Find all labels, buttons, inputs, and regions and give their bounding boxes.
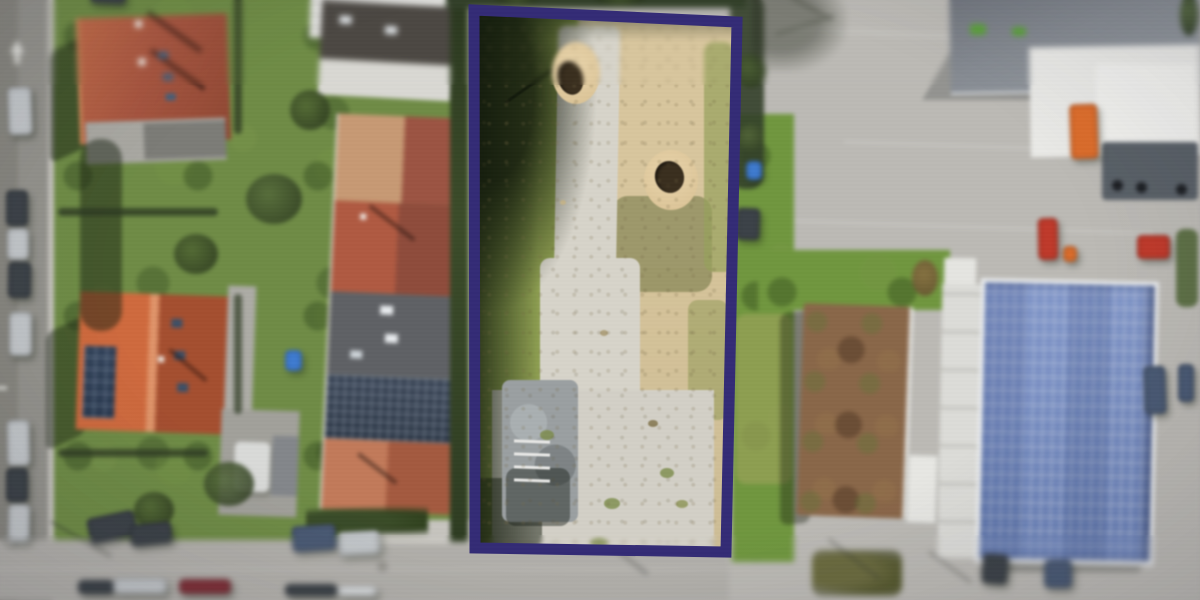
- parked-car: [1143, 366, 1167, 415]
- parked-car: [6, 468, 28, 502]
- parked-car: [78, 580, 114, 594]
- parked-car: [285, 584, 337, 596]
- parked-car: [8, 504, 31, 542]
- parked-car: [9, 312, 32, 356]
- parked-car: [7, 228, 29, 260]
- parked-car: [337, 530, 380, 556]
- parked-car: [6, 190, 28, 226]
- blue-bin: [746, 161, 762, 180]
- red-car: [1038, 218, 1059, 260]
- parked-car: [291, 523, 337, 552]
- orange-truck: [1069, 104, 1099, 160]
- parked-car: [113, 578, 167, 594]
- parked-car: [90, 0, 127, 5]
- garden-object: [285, 350, 302, 371]
- parked-car: [129, 521, 173, 547]
- parked-car: [337, 586, 377, 596]
- plot-texture: [468, 5, 743, 557]
- aerial-photo: [0, 0, 1200, 600]
- red-truck: [1137, 235, 1170, 259]
- parked-car: [179, 579, 231, 594]
- parked-car: [7, 420, 31, 466]
- dark-bins: [735, 208, 760, 241]
- parked-car: [981, 553, 1009, 585]
- parked-car: [8, 262, 32, 298]
- parked-car: [1178, 364, 1194, 402]
- parked-car: [1044, 560, 1072, 588]
- parked-car: [7, 87, 33, 136]
- orange-car: [1063, 246, 1077, 262]
